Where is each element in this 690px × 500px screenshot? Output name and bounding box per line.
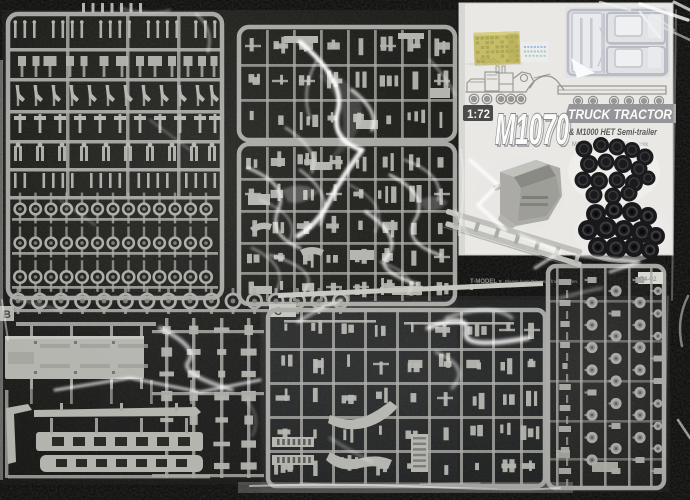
svg-text:1:72: 1:72	[467, 109, 490, 121]
svg-text:T-MODEL »: T-MODEL »	[470, 279, 503, 285]
svg-text:& M1000 HET Semi-trailer: & M1000 HET Semi-trailer	[569, 127, 658, 138]
svg-text:M1070: M1070	[495, 105, 569, 154]
svg-text:TRUCK TRACTOR: TRUCK TRACTOR	[568, 107, 672, 122]
